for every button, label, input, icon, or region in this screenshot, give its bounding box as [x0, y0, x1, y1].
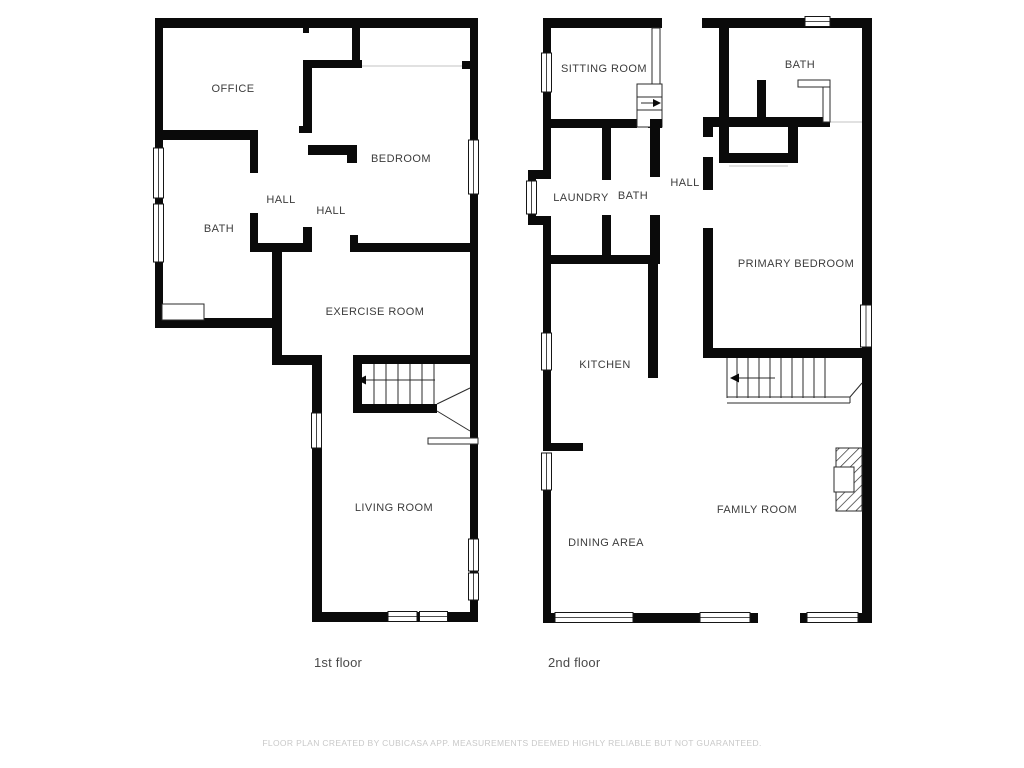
floor-title-2nd: 2nd floor	[548, 655, 601, 670]
room-label-sitting-room: SITTING ROOM	[561, 63, 647, 75]
stairs-up-2nd	[637, 28, 662, 128]
window	[312, 413, 322, 448]
room-label-family-room: FAMILY ROOM	[717, 504, 797, 516]
window	[469, 539, 479, 571]
floorplan-canvas: OFFICE BATH HALL HALL BEDROOM EXERCISE R…	[0, 0, 1024, 768]
window	[527, 181, 537, 214]
floor-plan-1st: OFFICE BATH HALL HALL BEDROOM EXERCISE R…	[154, 18, 479, 670]
window	[861, 305, 872, 347]
room-label-bath-upper: BATH	[785, 59, 815, 71]
room-label-laundry: LAUNDRY	[553, 192, 609, 204]
footer-disclaimer: FLOOR PLAN CREATED BY CUBICASA APP. MEAS…	[262, 738, 761, 748]
window	[420, 612, 448, 622]
window	[469, 573, 479, 600]
room-label-office: OFFICE	[211, 83, 254, 95]
window	[542, 53, 552, 92]
window	[700, 613, 750, 623]
room-label-exercise-room: EXERCISE ROOM	[326, 306, 425, 318]
stair-railing	[652, 28, 660, 84]
window	[542, 333, 552, 370]
room-label-hall-a: HALL	[266, 194, 295, 206]
stair-landing-edge	[428, 438, 478, 444]
firebox	[834, 467, 854, 492]
window	[469, 140, 479, 194]
floor-plan-2nd: SITTING ROOM BATH LAUNDRY BATH HALL PRIM…	[527, 17, 873, 671]
window	[154, 204, 164, 262]
windows-2nd	[527, 17, 872, 623]
room-label-hall-b: HALL	[316, 205, 345, 217]
window	[807, 613, 858, 623]
window	[388, 612, 417, 622]
room-label-dining-area: DINING AREA	[568, 537, 644, 549]
room-label-bath: BATH	[204, 223, 234, 235]
room-label-bath: BATH	[618, 190, 648, 202]
room-label-primary-bedroom: PRIMARY BEDROOM	[738, 258, 854, 270]
fireplace	[834, 448, 862, 511]
room-label-hall: HALL	[670, 177, 699, 189]
walls-2nd	[528, 18, 872, 623]
stairs-2nd	[727, 358, 862, 403]
window	[154, 148, 164, 198]
room-label-living-room: LIVING ROOM	[355, 502, 433, 514]
room-label-bedroom: BEDROOM	[371, 153, 431, 165]
window	[805, 17, 830, 27]
window	[555, 613, 633, 623]
stairs-down-arrow-icon	[730, 374, 739, 383]
window	[542, 453, 552, 490]
bath-vanity-1st	[162, 304, 204, 320]
bath-vanity-2nd	[798, 80, 830, 122]
floor-title-1st: 1st floor	[314, 655, 363, 670]
room-label-kitchen: KITCHEN	[579, 359, 630, 371]
